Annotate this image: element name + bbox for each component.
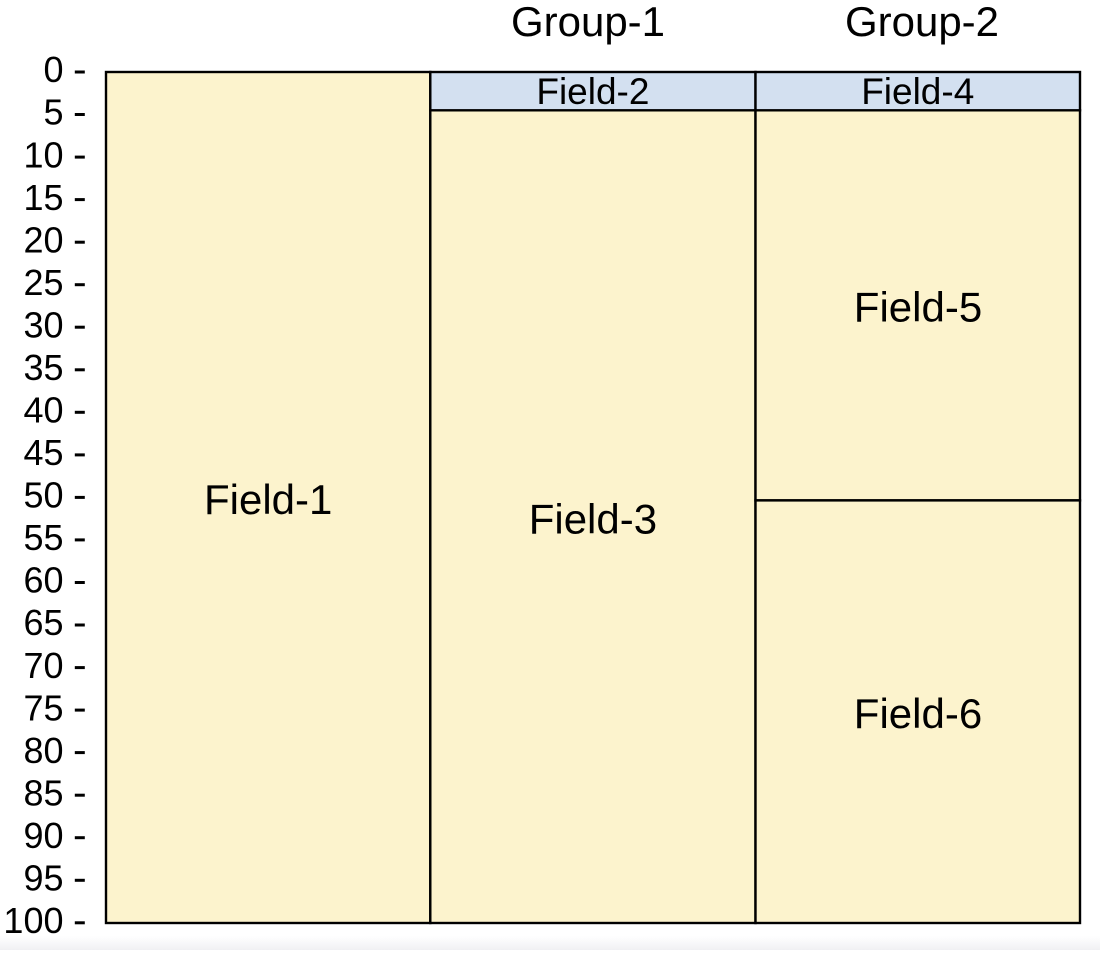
svg-text:35: 35 [23,347,63,388]
svg-text:Field-4: Field-4 [861,71,974,112]
svg-text:50: 50 [23,475,63,516]
svg-text:55: 55 [23,517,63,558]
svg-text:70: 70 [23,645,63,686]
svg-text:85: 85 [23,772,63,813]
svg-text:40: 40 [23,390,63,431]
svg-text:Field-5: Field-5 [854,284,982,331]
svg-text:Group-1: Group-1 [511,0,665,45]
svg-text:Group-2: Group-2 [845,0,999,45]
svg-text:90: 90 [23,815,63,856]
svg-text:60: 60 [23,560,63,601]
svg-text:Field-2: Field-2 [536,71,649,112]
svg-text:10: 10 [23,134,63,175]
svg-text:80: 80 [23,730,63,771]
svg-text:45: 45 [23,432,63,473]
svg-text:Field-1: Field-1 [204,476,332,523]
svg-text:30: 30 [23,304,63,345]
svg-text:25: 25 [23,262,63,303]
svg-text:5: 5 [43,92,63,133]
svg-text:15: 15 [23,177,63,218]
svg-text:65: 65 [23,602,63,643]
svg-text:95: 95 [23,858,63,899]
svg-text:Field-6: Field-6 [854,690,982,737]
svg-text:Field-3: Field-3 [529,496,657,543]
svg-text:20: 20 [23,219,63,260]
svg-text:75: 75 [23,687,63,728]
svg-text:0: 0 [43,49,63,90]
svg-text:100: 100 [3,900,63,941]
